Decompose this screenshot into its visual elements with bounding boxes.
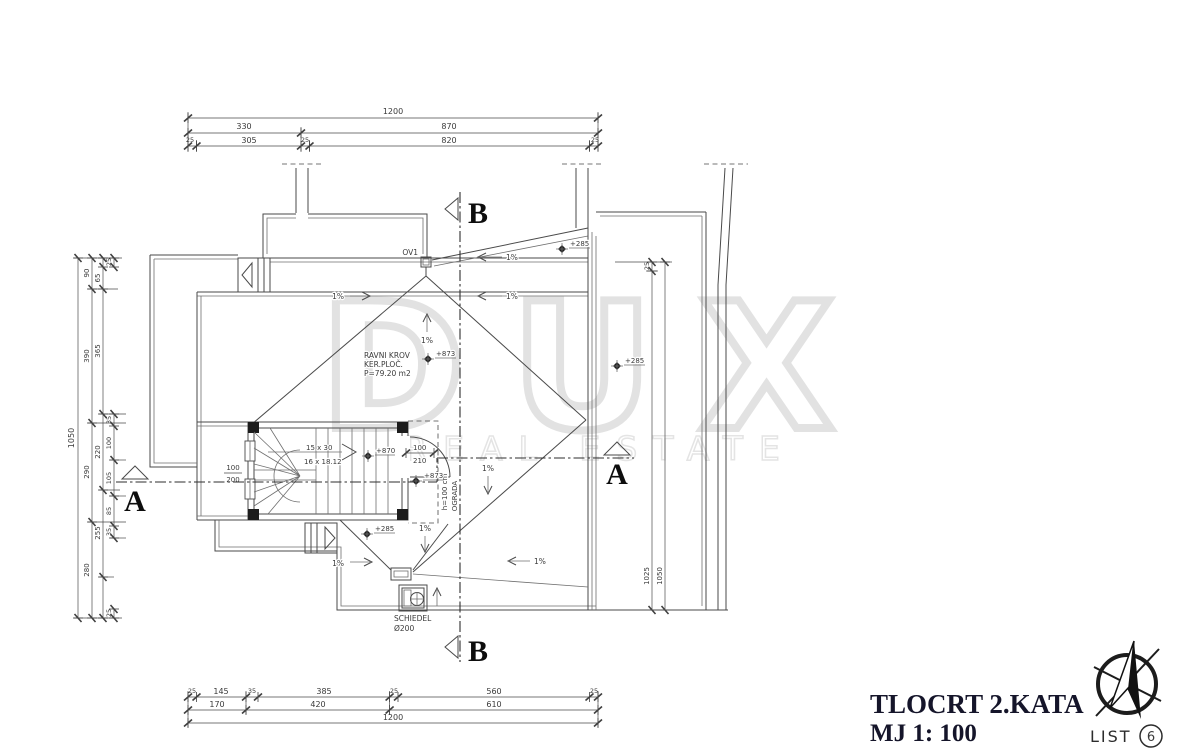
chimney-size-label: Ø200 [394, 624, 414, 633]
dim-label: 35 [105, 528, 113, 536]
slope-label: 1% [506, 292, 518, 301]
dimension-chain-top: 1200 330 870 25 305 25 820 25 [184, 107, 602, 152]
slope-label: 1% [332, 292, 344, 301]
roof-label-line: P=79.20 m2 [364, 369, 411, 378]
dim-label: 25 [105, 258, 113, 266]
roof-label-line: KER.PLOČ. [364, 360, 403, 369]
dim-label: 420 [310, 700, 325, 709]
drain-label: OV1 [402, 248, 418, 257]
door-width-label: 100 [413, 444, 426, 452]
watermark-tagline: REAL ESTATE [404, 429, 796, 468]
dim-label: 290 [83, 465, 91, 478]
dim-label: 330 [236, 122, 251, 131]
slope-label: 1% [534, 557, 546, 566]
dim-label: 1200 [383, 107, 403, 116]
dim-label: 1200 [383, 713, 403, 722]
sheet-scale: MJ 1: 100 [870, 720, 977, 747]
dim-label: 820 [441, 136, 456, 145]
spot-elevation-label: +285 [570, 240, 589, 248]
north-arrow-icon [1094, 641, 1161, 719]
dim-label: 365 [94, 344, 102, 357]
slope-label: 1% [332, 559, 344, 568]
section-a-label: A [124, 485, 146, 518]
dim-label: 25 [590, 687, 598, 695]
dim-label: 85 [105, 507, 113, 515]
roof-label-line: RAVNI KROV [364, 351, 411, 360]
slope-label: 1% [419, 524, 431, 533]
spot-elevation-label: +870 [376, 447, 395, 455]
sheet-number-label: LIST [1090, 727, 1132, 746]
dim-label: 25 [188, 687, 196, 695]
door-height-label: 210 [413, 457, 426, 465]
stair-riser-label: 16 x 18.12 [304, 458, 342, 466]
spot-elevation-label: +285 [375, 525, 394, 533]
window-width-label: 100 [226, 464, 239, 472]
dim-label: 25 [301, 136, 309, 144]
dim-label: 560 [486, 687, 501, 696]
dimension-chain-bottom: 25 145 35 385 25 560 25 170 420 610 1200 [184, 687, 602, 728]
floorplan-canvas: DUX REAL ESTATE 1200 330 870 25 305 25 8… [0, 0, 1200, 752]
dim-label: 65 [94, 274, 102, 283]
window-height-label: 200 [226, 476, 239, 484]
dim-label: 35 [105, 416, 113, 424]
dim-label: 255 [94, 526, 102, 539]
chimney-brand-label: SCHIEDEL [394, 614, 432, 623]
dim-label: 610 [486, 700, 501, 709]
dim-label: 305 [241, 136, 256, 145]
railing-label: OGRADA [451, 481, 459, 512]
section-b-label: B [468, 197, 488, 230]
dim-label: 145 [213, 687, 228, 696]
chimney: SCHIEDEL Ø200 [394, 585, 441, 633]
dimension-chain-left: 1050 90 390 290 280 65 365 220 255 25 35… [67, 254, 126, 622]
dim-label: 35 [248, 687, 256, 695]
sheet-title: TLOCRT 2.KATA [870, 689, 1084, 719]
dim-label: 385 [316, 687, 331, 696]
stair-riser-label: 15 x 30 [306, 444, 332, 452]
dim-label: 25 [390, 687, 398, 695]
dim-label: 1050 [67, 428, 76, 448]
dim-label: 105 [105, 472, 113, 484]
dim-label: 25 [105, 609, 113, 617]
title-block: TLOCRT 2.KATA MJ 1: 100 LIST 6 [870, 641, 1162, 747]
floorplan-sheet: DUX REAL ESTATE 1200 330 870 25 305 25 8… [0, 0, 1200, 752]
dim-label: 220 [94, 445, 102, 458]
section-b-label: B [468, 635, 488, 668]
spot-elevation-label: +873 [436, 350, 455, 358]
sheet-number: 6 [1147, 730, 1155, 745]
dim-label: 100 [105, 437, 113, 449]
slope-label: 1% [421, 336, 433, 345]
spot-elevation-label: +285 [625, 357, 644, 365]
dim-label: 25 [591, 136, 599, 144]
dim-label: 1050 [656, 567, 664, 585]
dim-label: 1025 [643, 567, 651, 585]
dim-label: 90 [83, 269, 91, 278]
section-a-label: A [606, 458, 628, 491]
dim-label: 25 [643, 262, 651, 270]
slope-label: 1% [482, 464, 494, 473]
spot-elevation-label: +873 [424, 472, 443, 480]
dim-label: 870 [441, 122, 456, 131]
dim-label: 170 [209, 700, 224, 709]
dim-label: 280 [83, 563, 91, 576]
slope-label: 1% [506, 253, 518, 262]
dim-label: 390 [83, 349, 91, 362]
dim-label: 25 [186, 136, 194, 144]
